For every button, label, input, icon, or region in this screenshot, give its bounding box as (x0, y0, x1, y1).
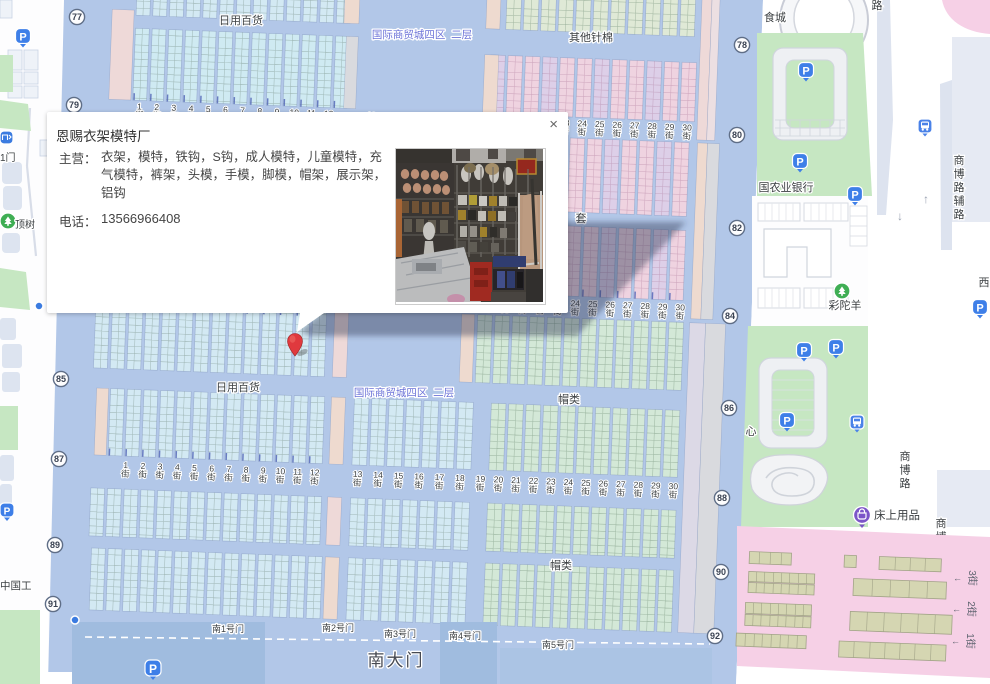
svg-text:街: 街 (494, 483, 503, 493)
svg-text:顶树: 顶树 (15, 218, 35, 231)
svg-text:街: 街 (682, 131, 691, 141)
svg-text:P: P (976, 303, 983, 315)
svg-text:P: P (4, 506, 11, 517)
svg-text:80: 80 (732, 130, 742, 140)
svg-text:心: 心 (746, 425, 757, 438)
svg-text:街: 街 (455, 481, 464, 491)
svg-text:街: 街 (647, 129, 656, 139)
svg-text:街: 街 (634, 488, 643, 498)
svg-text:南2号门: 南2号门 (322, 622, 354, 633)
svg-text:街: 街 (529, 484, 538, 494)
svg-text:P: P (796, 157, 803, 169)
svg-text:街: 街 (612, 128, 621, 138)
svg-text:1街: 1街 (964, 633, 977, 649)
svg-text:国际商贸城四区 二层: 国际商贸城四区 二层 (354, 386, 454, 399)
svg-text:P: P (802, 66, 809, 78)
svg-text:帽类: 帽类 (550, 558, 572, 572)
svg-text:街: 街 (293, 475, 302, 485)
svg-text:街: 街 (173, 470, 182, 480)
svg-text:P: P (800, 346, 807, 358)
svg-text:彩陀羊: 彩陀羊 (829, 298, 862, 312)
svg-text:P: P (832, 343, 839, 355)
svg-text:P: P (19, 32, 26, 44)
svg-text:1门: 1门 (0, 151, 16, 164)
svg-text:街: 街 (435, 481, 444, 491)
svg-text:街: 街 (564, 485, 573, 495)
svg-text:街: 街 (224, 472, 233, 482)
svg-text:77: 77 (72, 12, 82, 22)
svg-text:←: ← (953, 573, 962, 583)
svg-text:街: 街 (669, 490, 678, 500)
svg-text:86: 86 (724, 403, 734, 413)
svg-text:南5号门: 南5号门 (542, 639, 574, 650)
svg-text:街: 街 (665, 130, 674, 140)
svg-text:街: 街 (651, 489, 660, 499)
svg-text:帽类: 帽类 (558, 392, 580, 406)
svg-text:街: 街 (476, 482, 485, 492)
svg-text:街: 街 (310, 476, 319, 486)
svg-text:街: 街 (581, 486, 590, 496)
svg-text:街: 街 (623, 309, 632, 319)
svg-text:街: 街 (606, 308, 615, 318)
svg-text:89: 89 (50, 540, 60, 550)
svg-text:P: P (783, 416, 790, 428)
svg-text:84: 84 (725, 311, 735, 321)
svg-text:街: 街 (190, 471, 199, 481)
svg-text:92: 92 (710, 631, 720, 641)
svg-text:↑: ↑ (923, 192, 929, 206)
svg-text:街: 街 (599, 487, 608, 497)
svg-text:街: 街 (511, 483, 520, 493)
svg-text:西: 西 (979, 277, 990, 289)
svg-text:食城: 食城 (764, 10, 786, 24)
svg-text:78: 78 (737, 40, 747, 50)
svg-text:P: P (149, 662, 157, 676)
svg-text:街: 街 (414, 480, 423, 490)
svg-text:街: 街 (241, 473, 250, 483)
svg-text:南4号门: 南4号门 (449, 630, 481, 641)
svg-text:90: 90 (716, 567, 726, 577)
svg-text:日用百货: 日用百货 (216, 380, 260, 394)
svg-text:街: 街 (546, 485, 555, 495)
svg-text:街: 街 (207, 472, 216, 482)
svg-text:82: 82 (732, 223, 742, 233)
svg-text:街: 街 (658, 310, 667, 320)
svg-text:街: 街 (616, 488, 625, 498)
svg-text:85: 85 (56, 374, 66, 384)
svg-text:↓: ↓ (897, 209, 903, 223)
svg-text:街: 街 (276, 474, 285, 484)
svg-text:←: ← (952, 604, 961, 614)
svg-text:街: 街 (630, 129, 639, 139)
svg-text:南大门: 南大门 (368, 651, 425, 670)
svg-text:路: 路 (872, 0, 883, 12)
svg-text:街: 街 (258, 474, 267, 484)
svg-text:2街: 2街 (965, 601, 978, 617)
svg-text:91: 91 (48, 599, 58, 609)
svg-text:P: P (851, 190, 858, 202)
svg-text:国农业银行: 国农业银行 (759, 180, 814, 194)
svg-text:南1号门: 南1号门 (212, 623, 244, 634)
svg-text:街: 街 (640, 309, 649, 319)
svg-text:街: 街 (121, 468, 130, 478)
svg-text:商博路: 商博路 (900, 449, 911, 490)
svg-text:街: 街 (138, 469, 147, 479)
svg-text:中国工: 中国工 (0, 579, 32, 592)
svg-text:街: 街 (577, 127, 586, 137)
svg-text:南3号门: 南3号门 (384, 628, 416, 639)
svg-text:街: 街 (595, 127, 604, 137)
svg-text:88: 88 (717, 493, 727, 503)
svg-text:街: 街 (155, 470, 164, 480)
svg-text:←: ← (951, 636, 960, 646)
svg-text:其他针棉: 其他针棉 (569, 30, 613, 44)
svg-text:街: 街 (373, 478, 382, 488)
svg-text:街: 街 (353, 477, 362, 487)
svg-text:街: 街 (394, 479, 403, 489)
svg-text:87: 87 (54, 454, 64, 464)
svg-text:国际商贸城四区 二层: 国际商贸城四区 二层 (372, 28, 472, 41)
svg-text:日用百货: 日用百货 (219, 13, 263, 27)
svg-text:商博路辅路: 商博路辅路 (954, 153, 965, 221)
svg-text:3街: 3街 (966, 570, 979, 586)
svg-text:79: 79 (69, 100, 79, 110)
svg-text:街: 街 (675, 311, 684, 321)
svg-text:床上用品: 床上用品 (874, 508, 920, 522)
